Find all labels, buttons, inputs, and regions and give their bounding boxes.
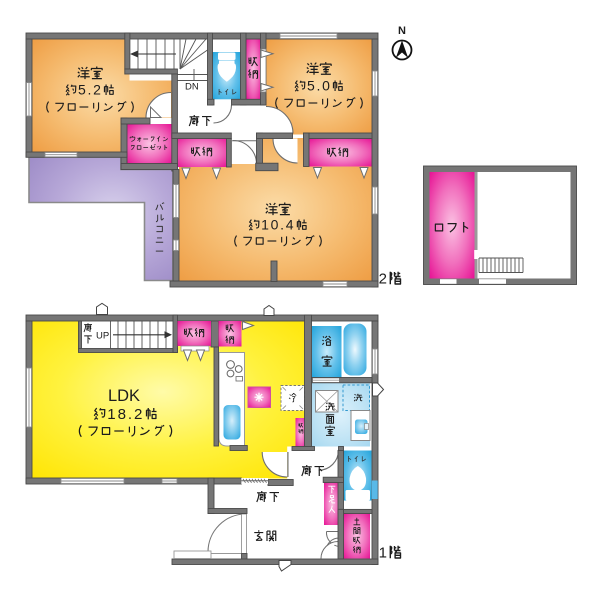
svg-text:18.2: 18.2: [107, 406, 144, 423]
svg-text:2: 2: [379, 270, 389, 287]
svg-text:5.0: 5.0: [307, 78, 332, 94]
svg-text:N: N: [398, 25, 406, 37]
svg-text:1: 1: [379, 544, 389, 561]
svg-text:DN: DN: [185, 82, 199, 93]
svg-text:5.2: 5.2: [78, 82, 103, 98]
svg-text:UP: UP: [96, 331, 109, 342]
svg-text:10.4: 10.4: [261, 217, 295, 233]
svg-text:LDK: LDK: [108, 387, 140, 405]
